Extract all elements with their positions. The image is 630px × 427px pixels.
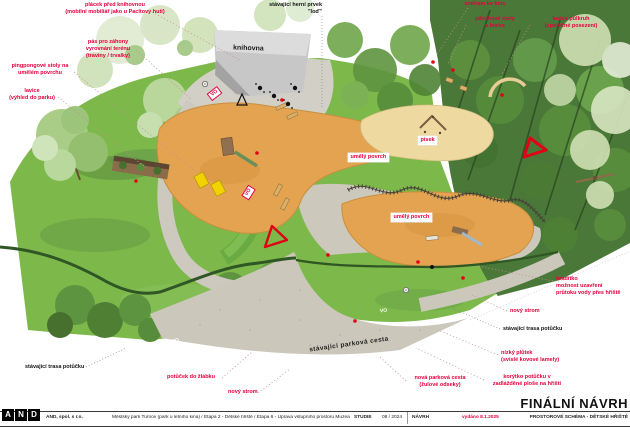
label-knihovna: knihovna xyxy=(233,44,264,52)
label-potucek-line1: potůček do žlábku xyxy=(167,374,215,381)
label-herni-line1: stávající herní prvek xyxy=(238,2,322,9)
label-smerem-ke-kinu: směrem ke kinu xyxy=(445,1,525,8)
and-logo: A N D xyxy=(2,409,40,421)
label-placek-line1: plácek před knihovnou xyxy=(35,2,195,9)
label-hraditko: hradítko možnost uzavření průtoku vody p… xyxy=(556,276,630,297)
sheet-title: FINÁLNÍ NÁVRH xyxy=(520,396,628,411)
vo-label-3: VO xyxy=(172,339,180,345)
label-pas-pro-zahony: pás pro záhony vyrovnání terénu (traviny… xyxy=(64,39,152,60)
label-hraditko-line3: průtoku vody přes hřiště xyxy=(556,290,630,297)
label-stav-trasa-r-line1: stávající trasa potůčku xyxy=(503,326,562,333)
project-title: Městský park Turnov (park u letního kina… xyxy=(112,415,350,420)
label-stav-trasa-l-line1: stávající trasa potůčku xyxy=(25,364,84,371)
tag-umely-povrch-1: umělý povrch xyxy=(348,153,389,162)
label-pas-line1: pás pro záhony xyxy=(64,39,152,46)
sheet-subtitle: PROSTOROVÉ SCHÉMA - DĚTSKÉ HŘIŠTĚ xyxy=(530,415,628,420)
label-potucek: potůček do žlábku xyxy=(167,374,215,381)
label-plutek-line1: nízký plůtek xyxy=(501,350,559,357)
logo-letter-d: D xyxy=(28,409,40,421)
label-smerem-line1: směrem ke kinu xyxy=(445,1,525,8)
label-novy-strom-r-line1: nový strom xyxy=(510,308,540,315)
label-lavice-line1: lavice xyxy=(0,88,64,95)
label-pas-line3: (traviny / trvalky) xyxy=(64,53,152,60)
label-novy-strom-bottom: nový strom xyxy=(228,389,258,396)
label-hraditko-line2: možnost uzavření xyxy=(556,283,630,290)
label-lavice-line2: (výhled do parku) xyxy=(0,95,64,102)
tag-umely-povrch-2: umělý povrch xyxy=(391,213,432,222)
tag-pisek: písek xyxy=(418,136,437,145)
label-herni-prvek: stávající herní prvek "loď" xyxy=(238,2,322,16)
label-lavice-pulkruh: lavice půlkruh (společné posezení) xyxy=(528,16,614,30)
label-nova-cesta: nová parková cesta (žulové odseky) xyxy=(409,375,471,389)
label-pas-line2: vyrovnání terénu xyxy=(64,46,152,53)
label-nova-cesta-line2: (žulové odseky) xyxy=(409,382,471,389)
logo-letter-a: A xyxy=(2,409,14,421)
library-building xyxy=(214,30,311,96)
vo-label-4: VO xyxy=(380,309,388,315)
label-pingpong-line2: umělém povrchu xyxy=(0,70,80,77)
label-novy-strom-right: nový strom xyxy=(510,308,540,315)
company-name: AND, spol. s r.o. xyxy=(46,415,83,420)
label-stav-trasa-right: stávající trasa potůčku xyxy=(503,326,562,333)
label-herni-line2: "loď" xyxy=(238,9,322,16)
label-pulkruh-line1: lavice půlkruh xyxy=(528,16,614,23)
label-stav-trasa-left: stávající trasa potůčku xyxy=(25,364,84,371)
label-korytko-line1: korýtko potůčku v xyxy=(484,374,570,381)
date-label: 08 / 2024 xyxy=(382,415,402,420)
issued-date: vydáno 8.1.2025 xyxy=(462,415,499,420)
stage-label: STUDIE xyxy=(354,415,372,420)
label-pingpong: pingpongové stoly na umělém povrchu xyxy=(0,63,80,77)
label-nova-cesta-line1: nová parková cesta xyxy=(409,375,471,382)
logo-letter-n: N xyxy=(15,409,27,421)
label-novy-strom-b-line1: nový strom xyxy=(228,389,258,396)
label-korytko-line2: zadlážděné ploše na hřišti xyxy=(484,381,570,388)
label-nizky-plutek: nízký plůtek (svislé kovové lamely) xyxy=(501,350,559,364)
label-lavice-vyhled: lavice (výhled do parku) xyxy=(0,88,64,102)
label-pingpong-line1: pingpongové stoly na xyxy=(0,63,80,70)
label-piknikove-stoly: piknikové stoly a lavice xyxy=(464,16,526,30)
label-plutek-line2: (svislé kovové lamely) xyxy=(501,357,559,364)
label-hraditko-line1: hradítko xyxy=(556,276,630,283)
label-placek-line2: (mobilní mobiliář jako u Pacltovy huti) xyxy=(35,9,195,16)
titlebar-divider xyxy=(407,412,408,424)
phase-label: NÁVRH xyxy=(412,415,429,420)
label-piknik-line2: a lavice xyxy=(464,23,526,30)
label-placek: plácek před knihovnou (mobilní mobiliář … xyxy=(35,2,195,16)
label-pulkruh-line2: (společné posezení) xyxy=(528,23,614,30)
label-piknik-line1: piknikové stoly xyxy=(464,16,526,23)
label-korytko: korýtko potůčku v zadlážděné ploše na hř… xyxy=(484,374,570,388)
site-plan-sheet: plácek před knihovnou (mobilní mobiliář … xyxy=(0,0,630,427)
